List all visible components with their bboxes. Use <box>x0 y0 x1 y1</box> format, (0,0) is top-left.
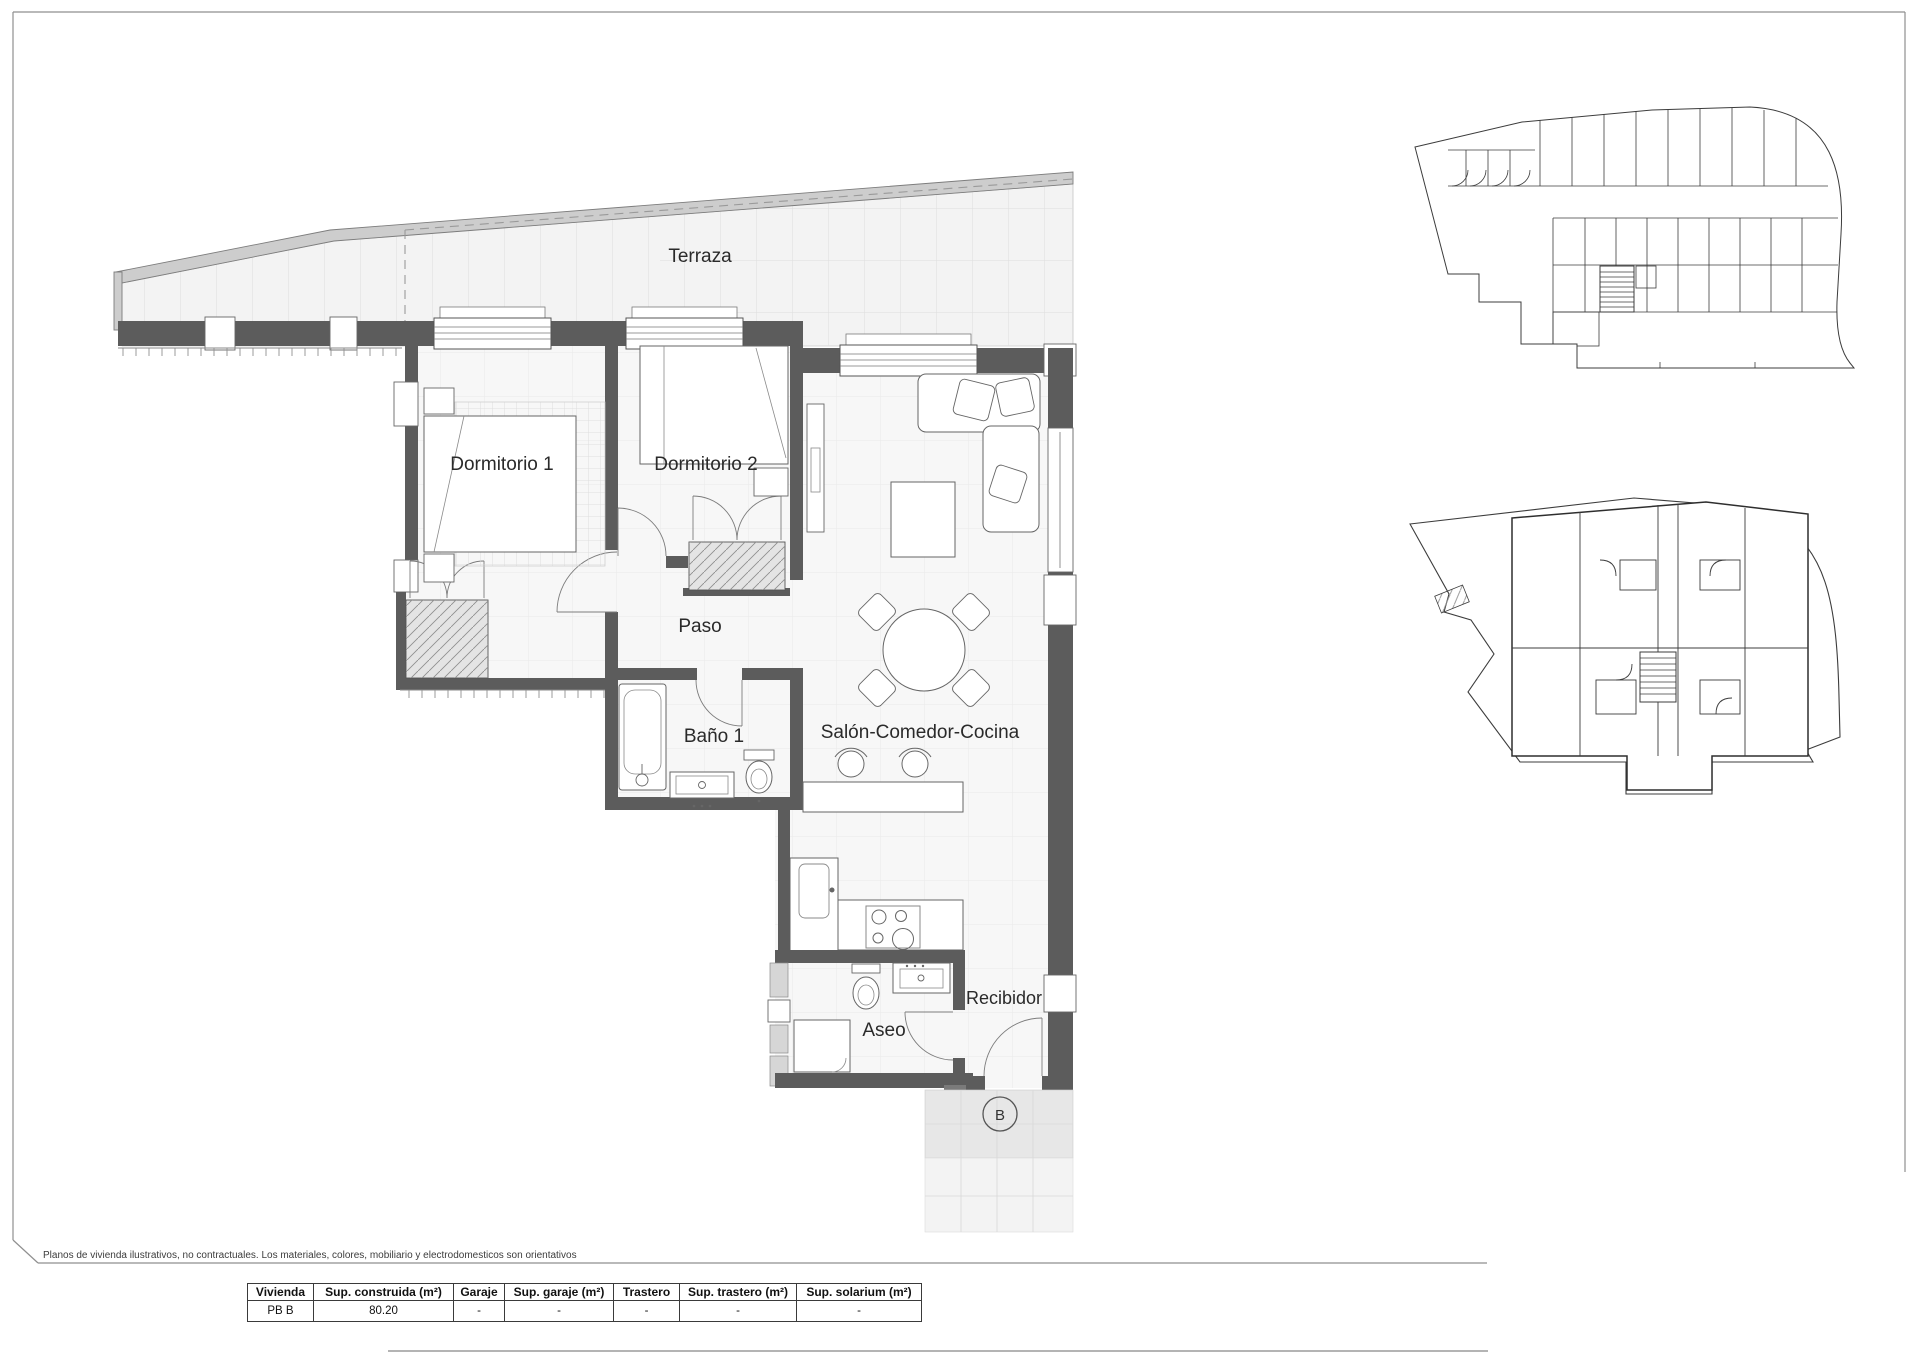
room-label-terraza: Terraza <box>668 246 732 267</box>
table-header-cell: Trastero <box>614 1284 680 1301</box>
building-stair-icon <box>1640 652 1676 702</box>
room-label-dormitorio-2: Dormitorio 2 <box>654 454 757 475</box>
room-label-recibidor: Recibidor <box>966 988 1042 1008</box>
single-bed-icon <box>640 346 788 464</box>
table-header-cell: Vivienda <box>248 1284 314 1301</box>
table-header-cell: Garaje <box>454 1284 505 1301</box>
table-cell: 80.20 <box>314 1301 454 1322</box>
room-label-aseo: Aseo <box>862 1020 905 1041</box>
table-header-cell: Sup. solarium (m²) <box>797 1284 922 1301</box>
table-header-cell: Sup. construida (m²) <box>314 1284 454 1301</box>
table-cell: - <box>454 1301 505 1322</box>
title-block-rule <box>388 1350 1488 1352</box>
garage-key-plan <box>1415 107 1854 368</box>
tv-unit-icon <box>807 404 824 532</box>
terrace-area <box>114 172 1073 346</box>
kitchen-sink-icon <box>799 864 835 918</box>
table-row: PB B 80.20 - - - - - <box>248 1301 922 1322</box>
nightstand-icon <box>424 554 454 582</box>
table-header-cell: Sup. trastero (m²) <box>680 1284 797 1301</box>
nightstand-icon <box>424 388 454 414</box>
table-cell: - <box>505 1301 614 1322</box>
building-key-plan <box>1410 498 1840 794</box>
table-cell: - <box>797 1301 922 1322</box>
right-exterior-wall <box>1044 348 1076 1088</box>
entrance-porch: B <box>925 1090 1073 1232</box>
neighbour-wall-band <box>118 317 405 356</box>
table-header-cell: Sup. garaje (m²) <box>505 1284 614 1301</box>
window-dormitorio-1 <box>434 307 551 349</box>
surface-table: Vivienda Sup. construida (m²) Garaje Sup… <box>247 1283 922 1322</box>
room-label-salon: Salón-Comedor-Cocina <box>821 722 1020 743</box>
coffee-table-icon <box>891 482 955 557</box>
kitchen-counter <box>803 782 963 812</box>
table-header-row: Vivienda Sup. construida (m²) Garaje Sup… <box>248 1284 922 1301</box>
disclaimer-note: Planos de vivienda ilustrativos, no cont… <box>43 1250 577 1261</box>
window-living <box>840 334 977 376</box>
window-dormitorio-2 <box>626 307 743 349</box>
floor-plan-sheet: B <box>0 0 1920 1357</box>
main-floor-plan: B <box>114 172 1076 1232</box>
washing-machine-icon <box>794 1020 850 1072</box>
room-label-dormitorio-1: Dormitorio 1 <box>450 454 553 475</box>
double-bed-icon <box>424 416 576 552</box>
unit-marker-label: B <box>995 1107 1005 1124</box>
plan-drawing: B <box>0 0 1920 1357</box>
side-table-icon <box>754 468 788 496</box>
aseo-toilet-icon <box>852 964 880 1009</box>
room-label-bano-1: Baño 1 <box>684 726 744 747</box>
aseo-sink-icon <box>893 963 950 993</box>
table-cell: PB B <box>248 1301 314 1322</box>
table-cell: - <box>680 1301 797 1322</box>
window-right-wall <box>1048 428 1073 572</box>
bathtub-icon <box>619 684 666 790</box>
exterior-stair-icon <box>1435 585 1470 613</box>
table-cell: - <box>614 1301 680 1322</box>
room-label-paso: Paso <box>678 616 721 637</box>
